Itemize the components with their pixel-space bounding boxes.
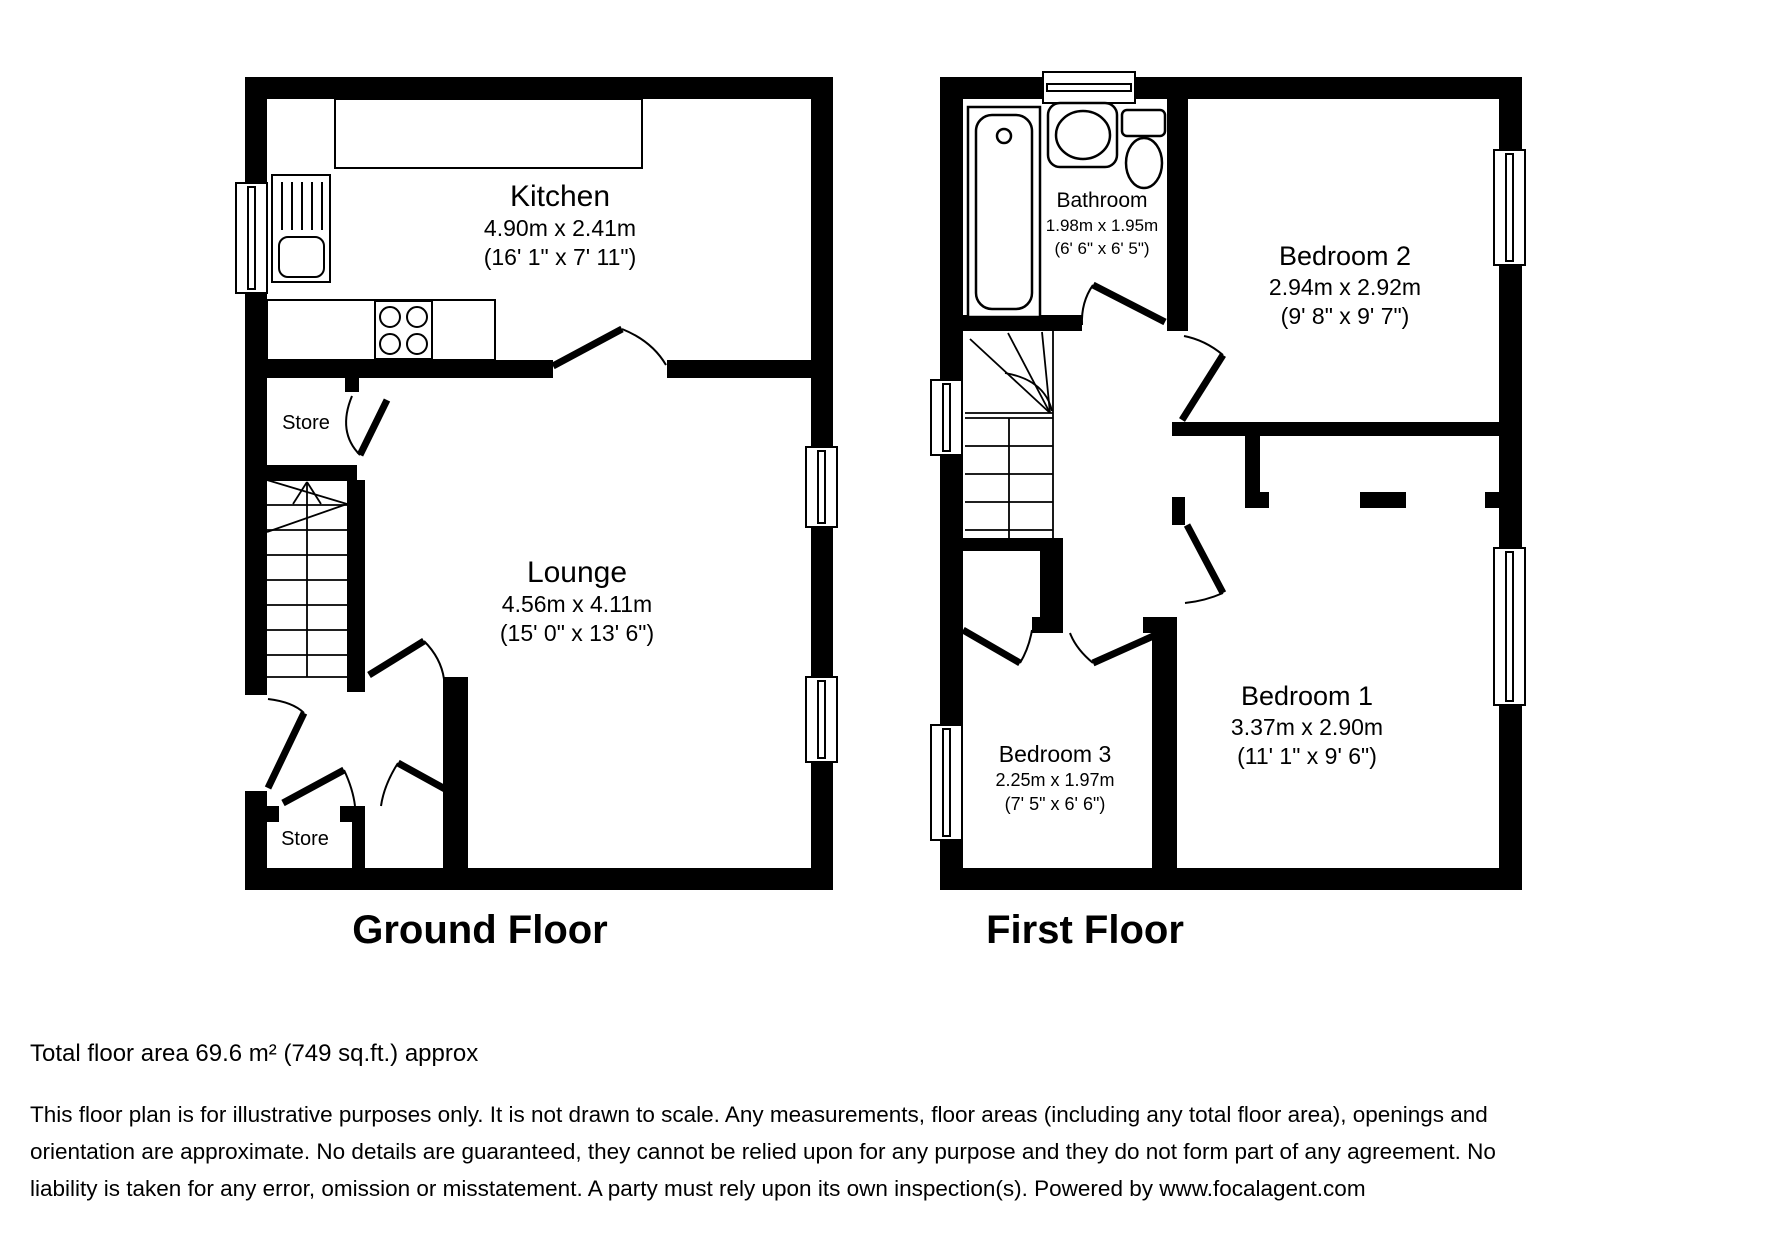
kitchen-window-icon xyxy=(236,183,267,293)
lounge-metric: 4.56m x 4.11m xyxy=(500,590,654,619)
ground-floor-title: Ground Floor xyxy=(352,908,608,953)
store-bottom-label: Store xyxy=(281,828,329,851)
total-floor-area: Total floor area 69.6 m² (749 sq.ft.) ap… xyxy=(30,1040,478,1068)
lounge-window-lower-icon xyxy=(806,677,837,762)
bedroom1-metric: 3.37m x 2.90m xyxy=(1231,713,1383,742)
bedroom2-window-icon xyxy=(1494,150,1525,265)
bedroom2-metric: 2.94m x 2.92m xyxy=(1269,273,1421,302)
bedroom1-name: Bedroom 1 xyxy=(1231,680,1383,713)
first-floor-title: First Floor xyxy=(986,908,1184,953)
bathroom-name: Bathroom xyxy=(1046,188,1158,214)
lounge-window-upper-icon xyxy=(806,447,837,527)
front-door xyxy=(268,699,304,788)
bedroom3-door xyxy=(963,630,1032,663)
stairs-first-icon xyxy=(965,331,1053,538)
kitchen-label: Kitchen 4.90m x 2.41m (16' 1" x 7' 11") xyxy=(484,180,637,272)
lounge-imperial: (15' 0" x 13' 6") xyxy=(500,619,654,648)
lounge-door xyxy=(369,641,444,679)
disclaimer-text: This floor plan is for illustrative purp… xyxy=(30,1096,1545,1207)
bedroom2-imperial: (9' 8" x 9' 7") xyxy=(1269,302,1421,331)
bedroom3-label: Bedroom 3 2.25m x 1.97m (7' 5" x 6' 6") xyxy=(995,740,1114,816)
toilet-icon xyxy=(1122,110,1165,188)
store-top-label: Store xyxy=(282,412,330,435)
bedroom2-door xyxy=(1182,336,1223,420)
bedroom1-label: Bedroom 1 3.37m x 2.90m (11' 1" x 9' 6") xyxy=(1231,680,1383,771)
bathroom-door xyxy=(1082,285,1165,325)
sink-icon xyxy=(272,175,330,282)
bedroom2-name: Bedroom 2 xyxy=(1269,240,1421,273)
basin-icon xyxy=(1048,103,1117,167)
hob-icon xyxy=(375,301,432,359)
bedroom1-imperial: (11' 1" x 9' 6") xyxy=(1231,742,1383,771)
bedroom1-window-icon xyxy=(1494,548,1525,705)
bathroom-metric: 1.98m x 1.95m xyxy=(1046,214,1158,237)
bath-icon xyxy=(968,107,1040,317)
bedroom3-name: Bedroom 3 xyxy=(995,740,1114,768)
lounge-name: Lounge xyxy=(500,556,654,590)
store-top-door xyxy=(346,396,387,455)
bathroom-label: Bathroom 1.98m x 1.95m (6' 6" x 6' 5") xyxy=(1046,188,1158,260)
bedroom3-window-icon xyxy=(931,725,962,840)
bathroom-imperial: (6' 6" x 6' 5") xyxy=(1046,237,1158,260)
bedroom3-metric: 2.25m x 1.97m xyxy=(995,768,1114,792)
kitchen-door xyxy=(553,329,666,366)
kitchen-metric: 4.90m x 2.41m xyxy=(484,214,637,243)
kitchen-name: Kitchen xyxy=(484,180,637,214)
bedroom2-label: Bedroom 2 2.94m x 2.92m (9' 8" x 9' 7") xyxy=(1269,240,1421,331)
stairs-ground-icon xyxy=(267,480,347,677)
counter-top xyxy=(335,99,642,168)
landing-door xyxy=(1070,633,1160,663)
bedroom1-door xyxy=(1185,525,1223,603)
store-bottom-door xyxy=(283,770,355,806)
lounge-label: Lounge 4.56m x 4.11m (15' 0" x 13' 6") xyxy=(500,556,654,648)
bathroom-window-icon xyxy=(1043,72,1135,103)
floorplan-page: Kitchen 4.90m x 2.41m (16' 1" x 7' 11") … xyxy=(0,0,1771,1239)
bedroom3-imperial: (7' 5" x 6' 6") xyxy=(995,792,1114,816)
landing-window-icon xyxy=(931,380,962,455)
kitchen-imperial: (16' 1" x 7' 11") xyxy=(484,243,637,272)
